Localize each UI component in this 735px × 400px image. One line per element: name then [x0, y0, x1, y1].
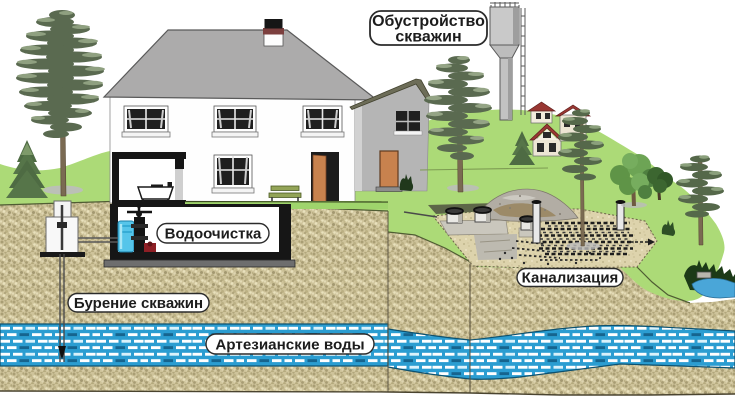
- svg-text:скважин: скважин: [395, 29, 461, 46]
- svg-text:Канализация: Канализация: [522, 270, 619, 287]
- svg-text:Водоочистка: Водоочистка: [165, 226, 262, 243]
- svg-text:Артезианские воды: Артезианские воды: [215, 337, 364, 354]
- svg-text:Обустройство: Обустройство: [372, 13, 485, 30]
- svg-text:Бурение скважин: Бурение скважин: [74, 295, 203, 312]
